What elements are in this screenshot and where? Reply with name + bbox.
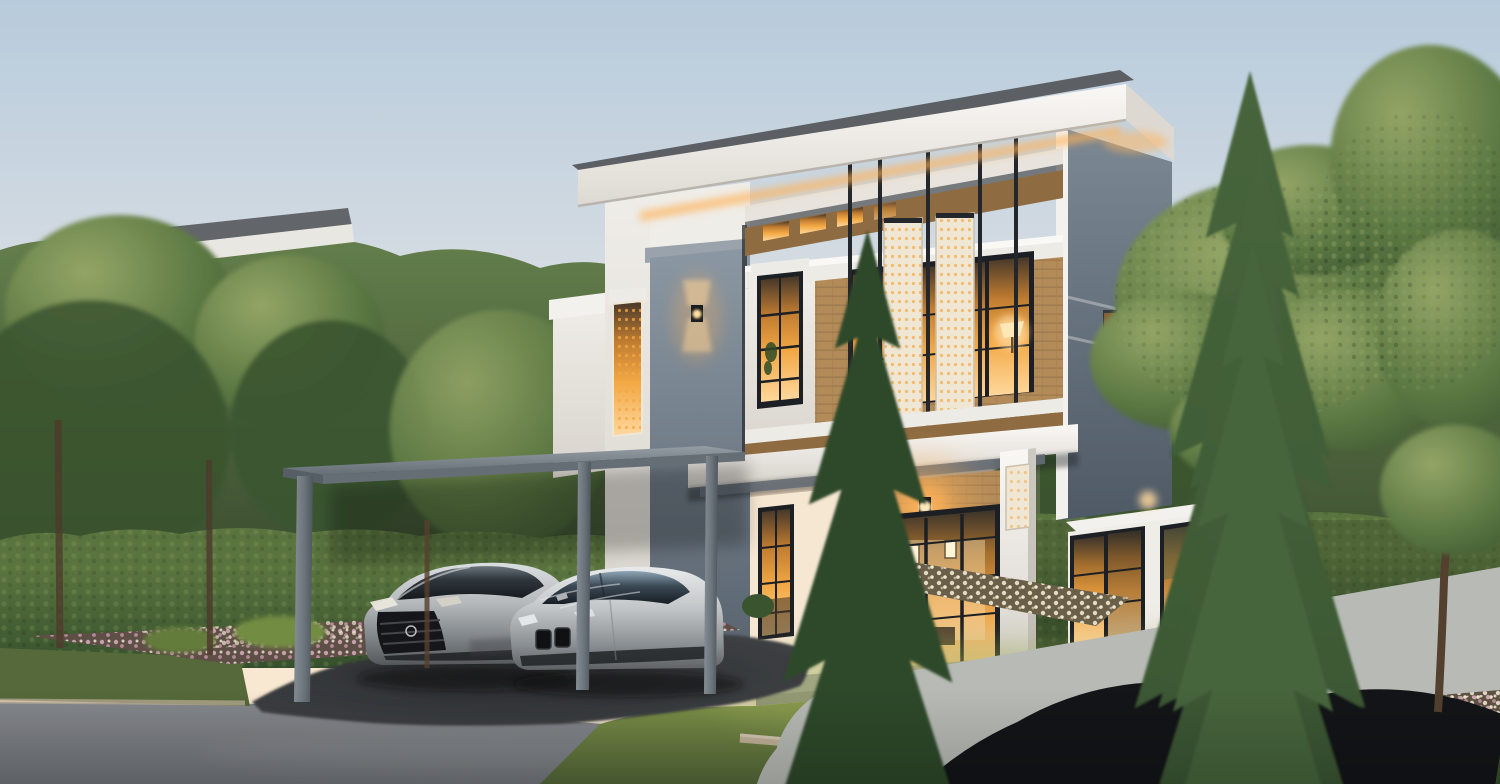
perforated-screen-window bbox=[613, 301, 642, 436]
architectural-render-image bbox=[0, 0, 1500, 784]
carport-post bbox=[294, 476, 313, 702]
render-canvas bbox=[0, 0, 1500, 784]
wing-sconce-glow bbox=[1139, 491, 1157, 509]
narrow-window bbox=[758, 504, 794, 640]
upper-window-left bbox=[751, 258, 809, 409]
plant-silhouette bbox=[765, 342, 777, 362]
carport-post bbox=[704, 456, 718, 694]
fence-wall bbox=[549, 292, 611, 478]
framed-picture bbox=[945, 540, 956, 558]
bottom-vignette bbox=[0, 690, 1500, 784]
wing-glass-doors bbox=[1070, 526, 1145, 650]
wall-sconce bbox=[673, 274, 721, 362]
column-screen-panel bbox=[1006, 464, 1030, 530]
carport-post bbox=[576, 462, 591, 690]
car-grille bbox=[536, 630, 551, 649]
perforated-screen-panel bbox=[936, 213, 974, 419]
